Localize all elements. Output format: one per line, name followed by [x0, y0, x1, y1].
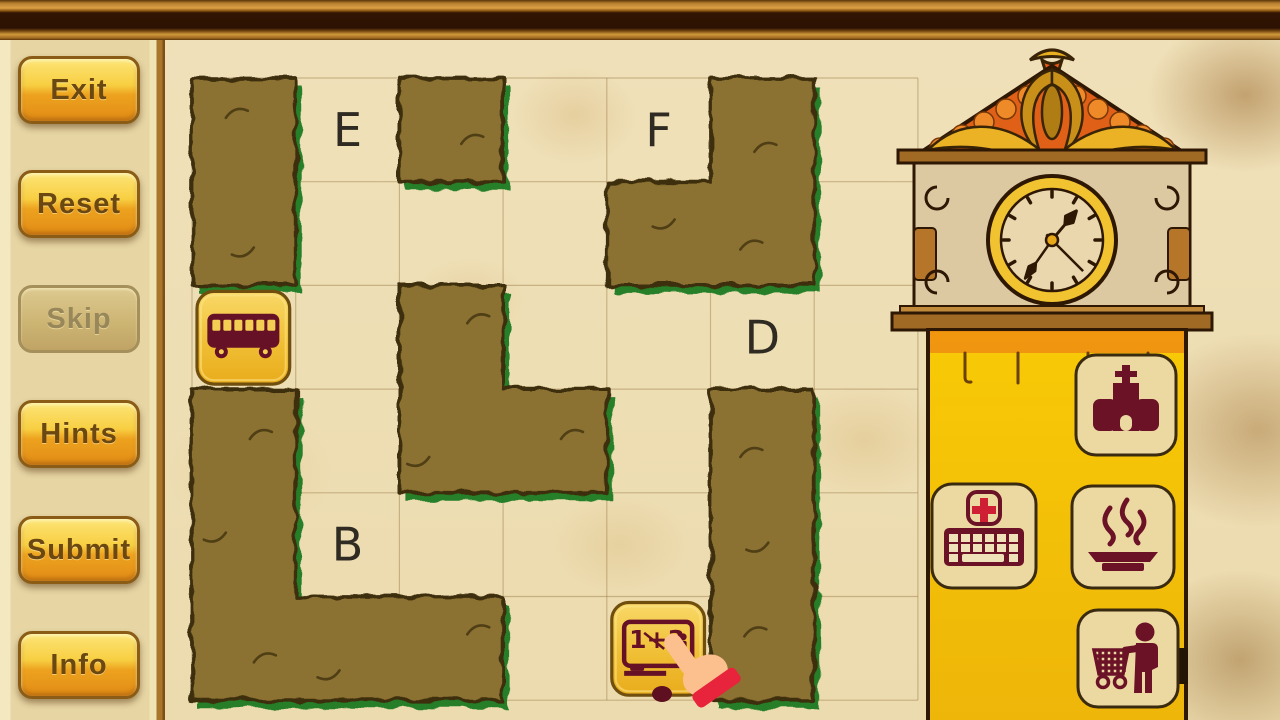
hedge-middle — [399, 285, 612, 500]
hedge-top-left — [192, 78, 302, 293]
game-screen: EFDB 1+3 — [0, 0, 1280, 720]
grandfather-clock — [892, 50, 1212, 720]
skip-button: Skip — [18, 285, 140, 353]
hedge-top-mid — [399, 78, 509, 190]
board-letter-b: B — [332, 518, 364, 572]
board-letter-d: D — [745, 310, 780, 364]
top-wooden-bar — [0, 0, 1280, 40]
restaurant-tile[interactable] — [1072, 486, 1174, 588]
board-letter-f: F — [645, 103, 671, 157]
medical-keyboard-tile[interactable] — [932, 484, 1036, 588]
submit-button[interactable]: Submit — [18, 516, 140, 584]
reset-button[interactable]: Reset — [18, 170, 140, 238]
hedge-right — [711, 389, 821, 708]
board-letter-e: E — [333, 103, 362, 157]
sidebar: Exit Reset Skip Hints Submit Info — [0, 40, 165, 720]
clock-finial — [1030, 50, 1074, 60]
info-button[interactable]: Info — [18, 631, 140, 699]
bus-tile[interactable] — [197, 291, 290, 384]
shopping-tile[interactable] — [1078, 610, 1178, 707]
hints-button[interactable]: Hints — [18, 400, 140, 468]
game-board: EFDB 1+3 — [0, 0, 1280, 720]
exit-button[interactable]: Exit — [18, 56, 140, 124]
church-tile[interactable] — [1076, 355, 1176, 455]
hedge-top-right — [607, 78, 820, 293]
